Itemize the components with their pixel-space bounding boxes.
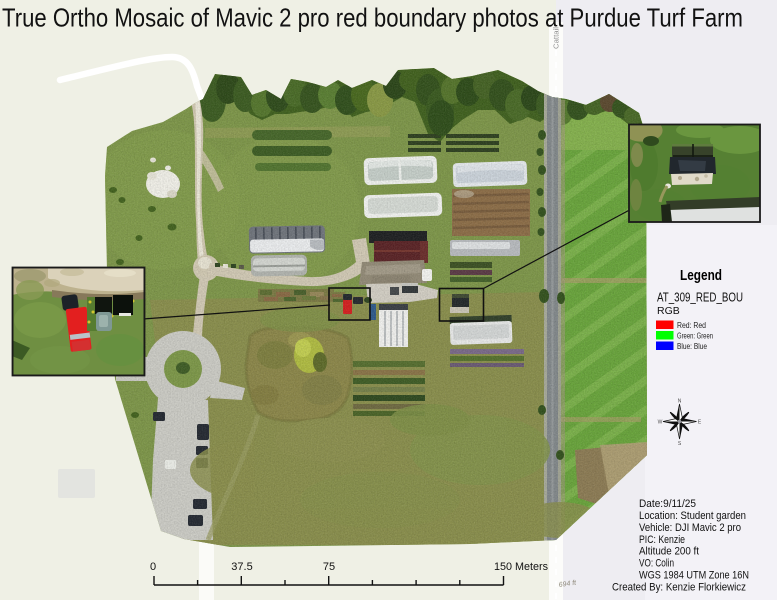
svg-text:VO: Colin: VO: Colin [639, 558, 674, 570]
svg-text:Blue: Blue: Blue: Blue [677, 342, 707, 351]
svg-text:N: N [678, 399, 682, 405]
svg-text:Vehicle: DJI Mavic 2 pro: Vehicle: DJI Mavic 2 pro [639, 522, 741, 534]
svg-text:WGS 1984 UTM Zone 16N: WGS 1984 UTM Zone 16N [639, 570, 749, 582]
svg-text:AT_309_RED_BOU: AT_309_RED_BOU [657, 290, 743, 305]
svg-text:0: 0 [150, 561, 156, 573]
svg-text:75: 75 [323, 561, 335, 573]
svg-text:37.5: 37.5 [231, 561, 252, 573]
svg-text:Red: Red: Red: Red [677, 321, 706, 330]
svg-text:Created By: Kenzie Florkiewicz: Created By: Kenzie Florkiewicz [612, 582, 746, 594]
svg-text:Green: Green: Green: Green [677, 332, 713, 341]
svg-text:150 Meters: 150 Meters [494, 561, 548, 573]
svg-text:True Ortho Mosaic of Mavic 2 p: True Ortho Mosaic of Mavic 2 pro red bou… [2, 3, 743, 33]
svg-text:PIC: Kenzie: PIC: Kenzie [639, 534, 685, 546]
svg-text:Location: Student garden: Location: Student garden [639, 510, 746, 522]
svg-text:Legend: Legend [680, 268, 722, 284]
svg-text:Date:9/11/25: Date:9/11/25 [639, 498, 696, 510]
svg-text:W: W [658, 420, 663, 426]
svg-text:Altitude 200 ft: Altitude 200 ft [639, 546, 699, 558]
svg-text:RGB: RGB [657, 305, 680, 317]
